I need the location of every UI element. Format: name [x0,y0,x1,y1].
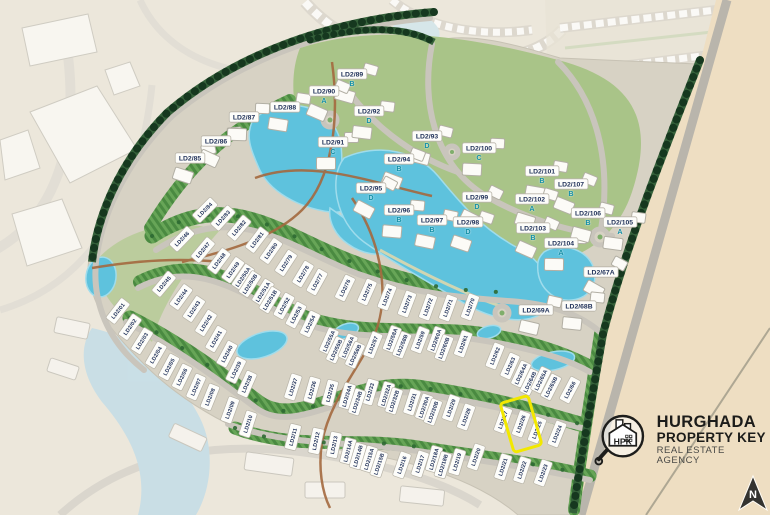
cluster-plot-label: LD2/93 [412,130,442,141]
cluster-plot-label: LD2/102 [515,193,549,204]
cluster-plot-label: LD2/85 [175,152,205,163]
cluster-type-letter: A [558,249,563,257]
plot-ld2-67a[interactable]: LD2/67A [583,266,618,277]
cluster-type-letter: D [366,117,371,125]
agency-logo: HPK HURGHADA PROPERTY KEY REAL ESTATE AG… [594,408,766,472]
cluster-type-letter: B [429,226,434,234]
plot-ld2-86[interactable]: LD2/86 [201,135,231,146]
cluster-plot-label: LD2/89 [337,68,367,79]
logo-line1: HURGHADA [657,414,766,431]
cluster-plot-label: LD2/87 [229,111,259,122]
cluster-type-letter: B [396,165,401,173]
cluster-plot-label: LD2/69A [518,304,553,315]
cluster-type-letter: B [585,219,590,227]
plot-ld2-106[interactable]: LD2/106B [571,207,605,226]
plot-ld2-107[interactable]: LD2/107B [554,178,588,197]
cluster-type-letter: B [349,80,354,88]
cluster-type-letter: D [474,203,479,211]
logo-monogram: HPK [614,436,633,446]
plot-ld2-99[interactable]: LD2/99D [462,191,492,210]
plot-ld2-98[interactable]: LD2/98D [453,216,483,235]
plot-ld2-90[interactable]: LD2/90A [309,85,339,104]
cluster-plot-label: LD2/95 [356,182,386,193]
cluster-plot-label: LD2/67A [583,266,618,277]
cluster-plot-label: LD2/101 [525,165,559,176]
cluster-plot-label: LD2/68B [561,300,596,311]
cluster-plot-label: LD2/88 [270,101,300,112]
cluster-type-letter: C [476,154,481,162]
cluster-plot-label: LD2/97 [417,214,447,225]
plot-ld2-95[interactable]: LD2/95D [356,182,386,201]
cluster-plot-label: LD2/92 [354,105,384,116]
cluster-type-letter: D [424,142,429,150]
plot-ld2-91[interactable]: LD2/91C [318,136,348,155]
plot-ld2-96[interactable]: LD2/96B [384,204,414,223]
cluster-plot-label: LD2/103 [516,222,550,233]
plot-ld2-88[interactable]: LD2/88 [270,101,300,112]
cluster-type-letter: B [568,190,573,198]
cluster-plot-label: LD2/104 [544,237,578,248]
north-arrow: N [734,474,770,514]
cluster-plot-label: LD2/98 [453,216,483,227]
hpk-logo-icon: HPK [594,409,650,471]
north-label: N [749,489,757,501]
cluster-plot-label: LD2/96 [384,204,414,215]
cluster-type-letter: B [530,234,535,242]
plot-ld2-89[interactable]: LD2/89B [337,68,367,87]
plot-ld2-93[interactable]: LD2/93D [412,130,442,149]
cluster-plot-label: LD2/99 [462,191,492,202]
plot-ld2-69a[interactable]: LD2/69A [518,304,553,315]
cluster-type-letter: A [321,97,326,105]
cluster-plot-label: LD2/86 [201,135,231,146]
master-plan-canvas: LD2/01LD2/02LD2/03LD2/04LD2/05LD2/06LD2/… [0,0,770,515]
cluster-plot-label: LD2/90 [309,85,339,96]
cluster-plot-label: LD2/105 [603,216,637,227]
plot-ld2-92[interactable]: LD2/92D [354,105,384,124]
logo-line3: REAL ESTATE AGENCY [657,446,766,466]
cluster-type-letter: B [396,216,401,224]
plot-ld2-102[interactable]: LD2/102A [515,193,549,212]
plot-ld2-85[interactable]: LD2/85 [175,152,205,163]
cluster-type-letter: D [368,194,373,202]
cluster-plot-label: LD2/91 [318,136,348,147]
cluster-type-letter: A [617,228,622,236]
cluster-plot-label: LD2/94 [384,153,414,164]
plot-ld2-97[interactable]: LD2/97B [417,214,447,233]
logo-line2: PROPERTY KEY [657,431,766,445]
cluster-plot-label: LD2/100 [462,142,496,153]
plot-ld2-87[interactable]: LD2/87 [229,111,259,122]
plot-ld2-105[interactable]: LD2/105A [603,216,637,235]
plot-ld2-104[interactable]: LD2/104A [544,237,578,256]
cluster-plot-label: LD2/107 [554,178,588,189]
cluster-type-letter: B [539,177,544,185]
cluster-plot-label: LD2/106 [571,207,605,218]
plot-ld2-94[interactable]: LD2/94B [384,153,414,172]
plot-ld2-100[interactable]: LD2/100C [462,142,496,161]
cluster-type-letter: C [330,148,335,156]
cluster-type-letter: D [465,228,470,236]
cluster-type-letter: A [529,205,534,213]
plot-ld2-68b[interactable]: LD2/68B [561,300,596,311]
